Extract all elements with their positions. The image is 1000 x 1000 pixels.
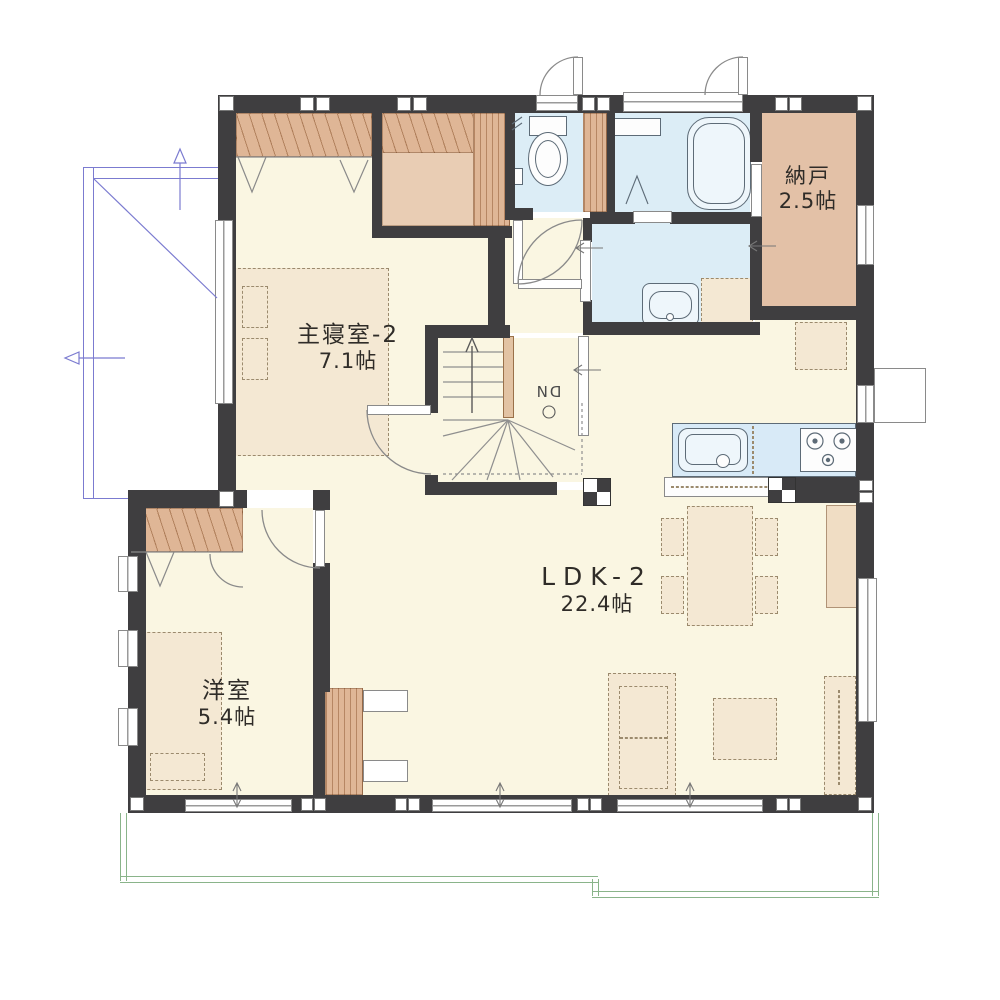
room-label-storage: 納戸 2.5帖 <box>733 164 883 214</box>
stair-direction-arrow <box>466 338 555 418</box>
room-area: 2.5帖 <box>733 189 883 214</box>
stair-treads <box>443 352 582 480</box>
stove-burners <box>807 433 850 466</box>
plan-linework <box>0 0 1000 1000</box>
slider-marks <box>233 783 694 807</box>
room-name: 納戸 <box>733 164 883 189</box>
room-label-western-room: 洋室 5.4帖 <box>127 678 327 730</box>
door-direction-arrows <box>574 241 776 375</box>
room-label-master-bedroom: 主寝室-2 7.1帖 <box>248 322 448 374</box>
room-area: 5.4帖 <box>127 705 327 730</box>
room-name: 主寝室-2 <box>248 322 448 349</box>
room-area: 22.4帖 <box>497 592 697 617</box>
room-label-ldk: LDK-2 22.4帖 <box>497 562 697 616</box>
room-name: LDK-2 <box>497 562 697 592</box>
roof-annotation-arrows <box>65 149 217 364</box>
room-name: 洋室 <box>127 678 327 705</box>
floor-plan-page: { "rooms": { "master_bedroom": { "name":… <box>0 0 1000 1000</box>
room-area: 7.1帖 <box>248 349 448 374</box>
bath-detail <box>512 117 648 204</box>
stairs-down-label: DN <box>524 382 572 400</box>
